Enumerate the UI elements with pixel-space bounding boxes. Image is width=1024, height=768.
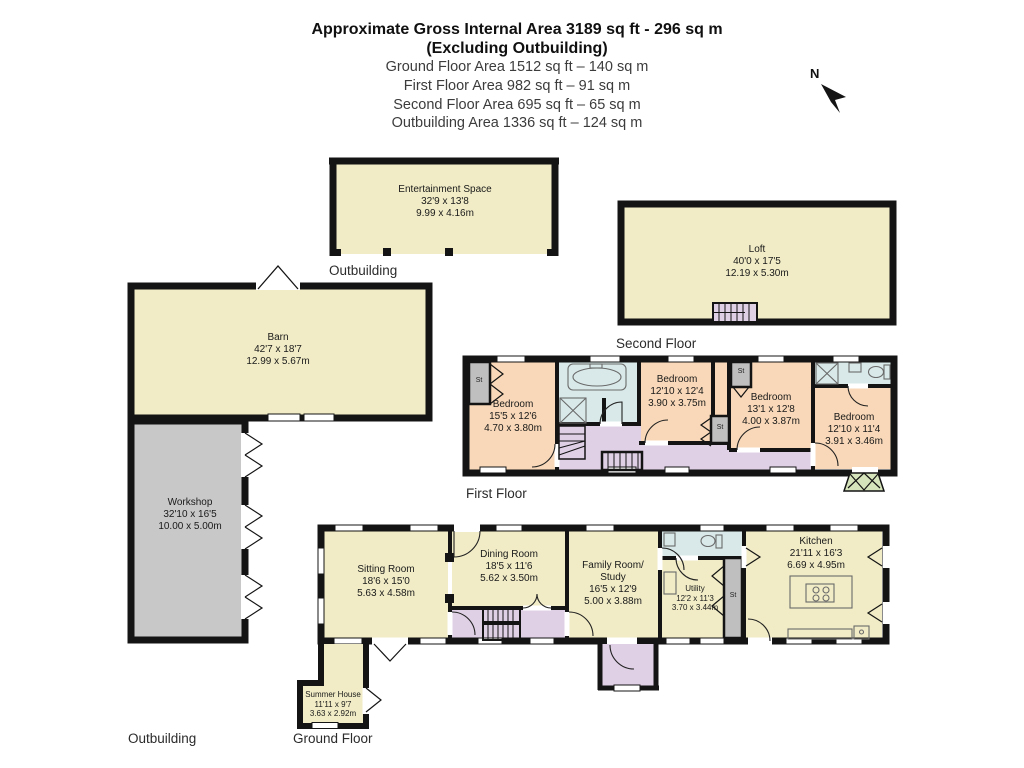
label-second-floor: Second Floor	[616, 336, 696, 351]
room-label-workshop: Workshop 32'10 x 16'5 10.00 x 5.00m	[158, 497, 221, 533]
label-ground-floor: Ground Floor	[293, 731, 373, 746]
closet-label-st-ground: St	[730, 592, 737, 599]
room-label-family-room: Family Room/ Study 16'5 x 12'9 5.00 x 3.…	[582, 560, 644, 608]
room-label-entertainment-space: Entertainment Space 32'9 x 13'8 9.99 x 4…	[398, 184, 491, 220]
room-label-utility: Utility 12'2 x 11'3 3.70 x 3.44m	[672, 584, 718, 613]
label-first-floor: First Floor	[466, 486, 527, 501]
outbuilding-area-line: Outbuilding Area 1336 sq ft – 124 sq m	[12, 114, 1022, 133]
bathroom-floor	[559, 362, 639, 424]
first-floor-porch	[844, 473, 884, 491]
closet-label-st3: St	[738, 368, 745, 375]
closet-label-st2: St	[717, 424, 724, 431]
closet-label-st1: St	[476, 377, 483, 384]
room-label-kitchen: Kitchen 21'11 x 16'3 6.69 x 4.95m	[787, 536, 845, 572]
room-label-barn: Barn 42'7 x 18'7 12.99 x 5.67m	[246, 332, 309, 368]
room-label-summer-house: Summer House 11'11 x 9'7 3.63 x 2.92m	[305, 690, 361, 719]
room-label-sitting-room: Sitting Room 18'6 x 15'0 5.63 x 4.58m	[357, 564, 415, 600]
page-subtitle: (Excluding Outbuilding)	[12, 39, 1022, 58]
north-label: N	[810, 66, 819, 81]
second-floor-area-line: Second Floor Area 695 sq ft – 65 sq m	[12, 96, 1022, 115]
room-label-loft: Loft 40'0 x 17'5 12.19 x 5.30m	[725, 244, 788, 280]
room-label-bedroom-1: Bedroom 15'5 x 12'6 4.70 x 3.80m	[484, 399, 542, 435]
label-outbuilding-top: Outbuilding	[329, 263, 397, 278]
page-title: Approximate Gross Internal Area 3189 sq …	[12, 20, 1022, 39]
loft-staircase	[713, 303, 757, 322]
room-label-bedroom-4: Bedroom 12'10 x 11'4 3.91 x 3.46m	[825, 412, 883, 448]
floorplan-page: Approximate Gross Internal Area 3189 sq …	[0, 0, 1024, 768]
room-label-bedroom-2: Bedroom 12'10 x 12'4 3.90 x 3.75m	[648, 374, 706, 410]
room-label-bedroom-3: Bedroom 13'1 x 12'8 4.00 x 3.87m	[742, 392, 800, 428]
header-block: Approximate Gross Internal Area 3189 sq …	[12, 20, 1022, 133]
entrance-porch	[598, 641, 659, 691]
ground-floor-area-line: Ground Floor Area 1512 sq ft – 140 sq m	[12, 58, 1022, 77]
room-label-dining-room: Dining Room 18'5 x 11'6 5.62 x 3.50m	[480, 549, 538, 585]
first-floor-area-line: First Floor Area 982 sq ft – 91 sq m	[12, 77, 1022, 96]
label-outbuilding-bottom: Outbuilding	[128, 731, 196, 746]
